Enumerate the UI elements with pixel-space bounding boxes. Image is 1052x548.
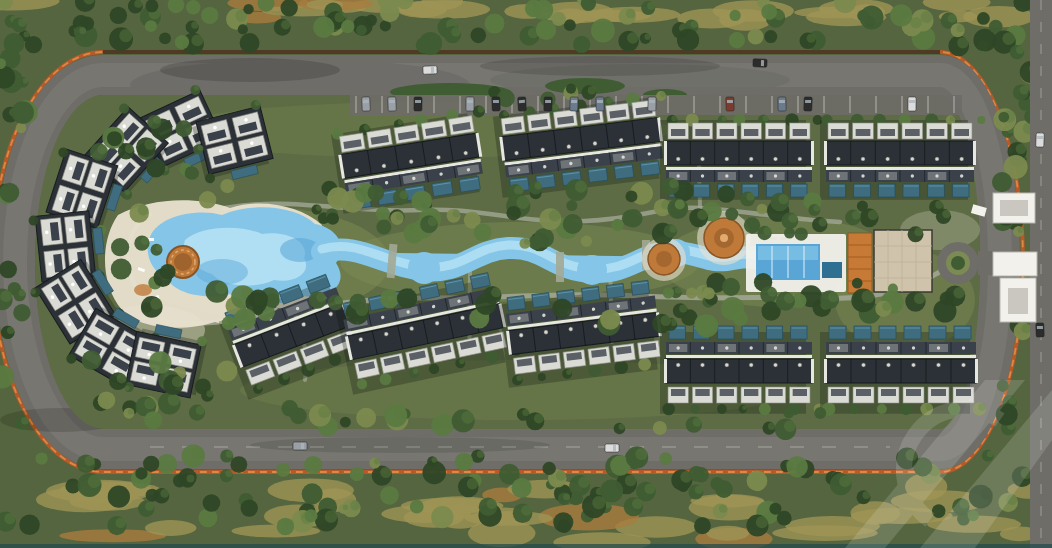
tree-highlight <box>282 464 290 472</box>
car <box>605 444 619 452</box>
tree <box>111 259 132 280</box>
tree <box>16 123 26 133</box>
parapet-trim <box>826 355 976 358</box>
tree <box>431 506 453 528</box>
roof-vent <box>961 363 965 367</box>
roof-vent <box>676 363 680 367</box>
tree <box>626 190 638 202</box>
tree <box>624 209 643 228</box>
roof-vent <box>861 157 865 161</box>
tree <box>4 33 25 54</box>
roof-terrace-inner <box>671 129 685 136</box>
tree-highlight <box>563 493 570 500</box>
tree <box>717 404 727 414</box>
roof-vent <box>544 330 549 335</box>
tree-highlight <box>347 21 354 28</box>
roof-vent <box>886 363 890 367</box>
tree <box>220 179 234 193</box>
tree <box>715 480 733 498</box>
tree <box>677 29 699 51</box>
tree <box>397 288 417 308</box>
river-bridge <box>556 252 564 282</box>
roof-terrace-inner <box>930 129 945 136</box>
tree <box>852 278 863 289</box>
tree <box>764 30 777 43</box>
tree-highlight <box>493 15 504 26</box>
roof-terrace-inner <box>768 389 782 396</box>
tree-highlight <box>935 201 943 209</box>
car-body <box>804 97 813 111</box>
tree-highlight <box>535 182 542 189</box>
roof-terrace-inner <box>931 389 946 396</box>
tree-highlight <box>150 21 157 28</box>
tree-highlight <box>520 479 531 490</box>
tree-highlight <box>316 205 322 211</box>
car <box>778 97 786 111</box>
car-windshield <box>1037 326 1043 329</box>
tree <box>111 238 129 256</box>
roof-vent <box>749 174 752 177</box>
tree-highlight <box>388 487 398 497</box>
roof-vent <box>836 157 840 161</box>
tree-highlight <box>191 21 198 28</box>
tree-highlight <box>399 191 408 200</box>
roof-terrace-inner <box>695 389 709 396</box>
roof-vent <box>887 346 890 349</box>
tree-highlight <box>669 225 676 232</box>
car-body <box>423 66 437 74</box>
roof-vent <box>962 346 965 349</box>
roof-vent <box>725 174 728 177</box>
end-cap <box>973 141 976 165</box>
car-body <box>466 97 474 111</box>
tree <box>327 187 349 209</box>
tree-highlight <box>756 516 768 528</box>
tree-highlight <box>950 116 955 121</box>
tree <box>110 7 127 24</box>
roof-vent <box>837 174 840 177</box>
tree <box>725 208 738 221</box>
tree <box>849 404 859 414</box>
roof-vent <box>514 151 519 156</box>
tree <box>356 408 376 428</box>
roof-vent <box>911 363 915 367</box>
tree <box>159 32 171 44</box>
gate-canopy-inner <box>1000 200 1028 216</box>
roof-vent <box>936 363 940 367</box>
car-body <box>596 97 604 111</box>
roof-vent <box>862 346 865 349</box>
roof-terrace-inner <box>793 129 807 136</box>
tree-highlight <box>394 406 407 419</box>
tree <box>145 0 158 12</box>
tree-highlight <box>719 505 727 513</box>
tree <box>686 287 697 298</box>
tree-highlight <box>481 225 491 235</box>
river-bulge <box>577 255 607 285</box>
car-windshield <box>761 60 764 66</box>
car-windshield <box>431 67 434 73</box>
tree <box>160 264 176 280</box>
tree <box>940 291 954 305</box>
tree-highlight <box>534 414 544 424</box>
car-body <box>518 97 527 111</box>
tree-highlight <box>85 456 95 466</box>
roof-vent <box>910 157 914 161</box>
tree <box>313 17 334 38</box>
car-body <box>1036 323 1044 337</box>
tree-highlight <box>7 327 14 334</box>
roundabout-tree <box>951 256 965 270</box>
roof-vent <box>566 144 571 149</box>
car-windshield <box>779 100 785 103</box>
roof-vent <box>725 346 728 349</box>
roof-vent <box>725 363 729 367</box>
car <box>293 442 307 450</box>
roof-vent <box>773 363 777 367</box>
roof-vent <box>798 174 801 177</box>
tree-highlight <box>675 287 682 294</box>
roof-terrace-inner <box>695 129 709 136</box>
tree <box>784 228 795 239</box>
tree <box>696 315 719 338</box>
tree-highlight <box>679 304 687 312</box>
car <box>466 97 474 111</box>
tree-highlight <box>813 205 820 212</box>
tree-highlight <box>828 292 838 302</box>
roof-terrace-inner <box>856 129 871 136</box>
car <box>388 97 397 111</box>
tree <box>302 483 323 504</box>
tree-highlight <box>156 245 163 252</box>
parapet-trim <box>826 167 974 170</box>
tree <box>380 2 400 22</box>
building-row <box>660 326 825 415</box>
tree <box>564 19 576 31</box>
tree-highlight <box>768 423 775 430</box>
tree-highlight <box>451 27 461 37</box>
tree <box>998 112 1009 123</box>
tree-highlight <box>191 446 204 459</box>
roof-vent <box>798 363 802 367</box>
tree-highlight <box>79 27 86 34</box>
tree <box>175 120 192 137</box>
end-cap <box>975 359 978 383</box>
tree <box>659 452 672 465</box>
car-windshield <box>805 100 811 103</box>
roof-terrace-inner <box>768 129 782 136</box>
roof-terrace-inner <box>671 389 685 396</box>
tree-highlight <box>514 185 524 195</box>
tree <box>475 294 496 315</box>
tree <box>888 284 898 294</box>
tree-highlight <box>21 417 29 425</box>
tree-highlight <box>957 37 968 48</box>
car <box>570 97 578 111</box>
tree <box>662 403 675 416</box>
roof-terrace-inner <box>954 129 969 136</box>
tree <box>581 236 592 247</box>
tree <box>376 207 390 221</box>
roof-vent <box>519 333 524 338</box>
tree-highlight <box>144 398 155 409</box>
tree <box>305 509 318 522</box>
sun-lounger <box>770 237 777 240</box>
car-body <box>388 97 397 111</box>
tree-highlight <box>768 5 777 14</box>
tree <box>977 116 985 124</box>
tree <box>13 304 30 321</box>
car-body <box>414 97 422 111</box>
car-body <box>544 97 552 111</box>
tree-highlight <box>380 467 391 478</box>
tree-highlight <box>98 144 108 154</box>
tree <box>416 37 432 53</box>
tree <box>977 12 990 25</box>
tree <box>249 290 268 309</box>
tree-highlight <box>731 299 744 312</box>
tree-highlight <box>318 406 330 418</box>
tree-highlight <box>243 310 255 322</box>
tree-highlight <box>839 475 851 487</box>
tree-highlight <box>187 475 195 483</box>
tree <box>694 517 711 534</box>
tree-highlight <box>778 194 788 204</box>
tree <box>157 454 177 474</box>
tree-highlight <box>138 205 149 216</box>
tree-highlight <box>226 450 233 457</box>
tree-highlight <box>441 416 453 428</box>
tree-highlight <box>644 34 650 40</box>
parapet-trim <box>666 355 812 358</box>
tree-highlight <box>281 20 290 29</box>
roof-vent <box>886 157 890 161</box>
tree-highlight <box>914 293 925 304</box>
car <box>492 97 500 111</box>
car-windshield <box>1037 136 1043 139</box>
tree <box>241 499 258 516</box>
lagoon-deep <box>196 259 248 285</box>
tree-highlight <box>644 483 655 494</box>
car-body <box>362 97 371 111</box>
car-windshield <box>649 100 655 103</box>
roof-vent <box>960 174 963 177</box>
tree <box>722 278 740 296</box>
tree-highlight <box>789 214 798 223</box>
car-body <box>726 97 734 111</box>
tree-highlight <box>119 29 132 42</box>
tree <box>566 84 576 94</box>
roof-vent <box>960 157 964 161</box>
car-windshield <box>363 100 369 103</box>
tree-highlight <box>181 36 189 44</box>
car-windshield <box>727 100 733 103</box>
tree <box>703 287 715 299</box>
tree-highlight <box>738 115 745 122</box>
building-row <box>820 113 985 199</box>
parapet-trim <box>666 167 812 170</box>
tree-highlight <box>208 8 218 18</box>
tree-highlight <box>742 405 747 410</box>
tree-highlight <box>784 293 794 303</box>
tree <box>203 494 221 512</box>
tree-highlight <box>617 220 624 227</box>
tree <box>135 467 147 479</box>
roof-terrace-inner <box>881 389 896 396</box>
roof-vent <box>676 346 679 349</box>
tree <box>380 289 399 308</box>
tree-highlight <box>575 181 587 193</box>
tree <box>552 298 572 318</box>
roof-terrace-inner <box>905 129 920 136</box>
tree-highlight <box>635 448 647 460</box>
tree <box>230 456 247 473</box>
tree-highlight <box>541 1 552 12</box>
tree <box>186 167 199 180</box>
tree <box>890 4 912 26</box>
tree <box>757 204 768 215</box>
tree <box>717 185 734 202</box>
roof-terrace-inner <box>720 389 734 396</box>
tree <box>573 36 590 53</box>
tree <box>795 227 808 240</box>
tree-highlight <box>24 31 30 37</box>
tree-highlight <box>521 505 532 516</box>
tree-highlight <box>22 78 28 84</box>
roof-terrace-inner <box>744 129 758 136</box>
gate-building-court <box>1008 288 1028 314</box>
tree <box>690 404 699 413</box>
tree <box>783 408 794 419</box>
car <box>596 97 604 111</box>
tree <box>932 504 946 518</box>
car-windshield <box>467 100 473 103</box>
tree <box>327 212 339 224</box>
gate-canopy-main <box>993 252 1037 276</box>
tree-highlight <box>463 454 473 464</box>
tree-highlight <box>0 290 12 302</box>
tree-highlight <box>144 139 155 150</box>
roof-vent <box>676 174 679 177</box>
roof-vent <box>749 363 753 367</box>
tree-highlight <box>1016 143 1027 154</box>
car-windshield <box>389 100 395 103</box>
tree-highlight <box>524 239 530 245</box>
tree-highlight <box>396 213 403 220</box>
clubhouse-roof <box>874 230 932 292</box>
car <box>804 97 813 111</box>
car-windshield <box>301 443 304 449</box>
tree-highlight <box>910 17 921 28</box>
tree-highlight <box>668 288 674 294</box>
tree <box>900 403 912 415</box>
tree-highlight <box>325 510 338 523</box>
tree <box>340 417 351 428</box>
tree-shadow-on-road <box>480 56 720 76</box>
clubhouse <box>746 230 932 293</box>
roof-vent <box>700 363 704 367</box>
tree-highlight <box>828 403 835 410</box>
master-plan-svg: Aerial 3D render of a residential compou… <box>0 0 1052 548</box>
car <box>414 97 422 111</box>
end-cap <box>811 359 814 383</box>
roof-vent <box>568 327 573 332</box>
tree <box>653 421 667 435</box>
car-windshield <box>909 100 915 103</box>
tree-highlight <box>453 210 461 218</box>
tree-highlight <box>1016 46 1024 54</box>
tree <box>470 28 486 44</box>
tree <box>747 470 768 491</box>
shade-island-top <box>720 234 728 242</box>
river-bulge <box>408 252 440 284</box>
roof-vent <box>593 141 598 146</box>
tree <box>777 511 792 526</box>
tree-highlight <box>556 471 566 481</box>
roof-terrace-inner <box>720 129 734 136</box>
tree-highlight <box>225 470 232 477</box>
car-body <box>605 444 619 452</box>
tree-highlight <box>1002 32 1015 45</box>
tree-highlight <box>647 2 655 10</box>
tree <box>992 172 1012 192</box>
dry-grass-patch <box>145 520 197 536</box>
tree-highlight <box>660 315 671 326</box>
tree-highlight <box>768 287 777 296</box>
tree <box>557 519 571 533</box>
tree-highlight <box>861 290 874 303</box>
tree-highlight <box>191 34 203 46</box>
tree-highlight <box>334 296 342 304</box>
tree <box>744 217 760 233</box>
car <box>362 97 371 111</box>
roof-vent <box>540 148 545 153</box>
end-cap <box>664 141 667 165</box>
tree-highlight <box>914 228 923 237</box>
tree <box>376 220 391 235</box>
tree-highlight <box>284 519 294 529</box>
end-cap <box>811 141 814 165</box>
tree <box>566 200 577 211</box>
tree-highlight <box>957 24 965 32</box>
roof-vent <box>645 135 650 140</box>
end-cap <box>664 359 667 383</box>
tree <box>243 4 253 14</box>
roof-vent <box>701 346 704 349</box>
tree <box>729 32 745 48</box>
tree <box>591 19 615 43</box>
tree-highlight <box>625 475 637 487</box>
car-windshield <box>415 100 421 103</box>
tree-highlight <box>921 11 933 23</box>
tree-highlight <box>312 457 322 467</box>
tree <box>877 404 887 414</box>
tree <box>368 184 385 201</box>
tree-highlight <box>206 390 213 397</box>
tree-highlight <box>125 144 134 153</box>
tree <box>238 24 248 34</box>
roof-vent <box>836 363 840 367</box>
tree-highlight <box>852 211 861 220</box>
roof-vent <box>837 346 840 349</box>
tree-highlight <box>117 374 127 384</box>
tree-highlight <box>141 237 149 245</box>
tree-highlight <box>942 210 950 218</box>
car-windshield <box>493 100 499 103</box>
tree-highlight <box>1020 86 1029 95</box>
roof-vent <box>700 157 704 161</box>
aerial-master-plan-image: Aerial 3D render of a residential compou… <box>0 0 1052 548</box>
